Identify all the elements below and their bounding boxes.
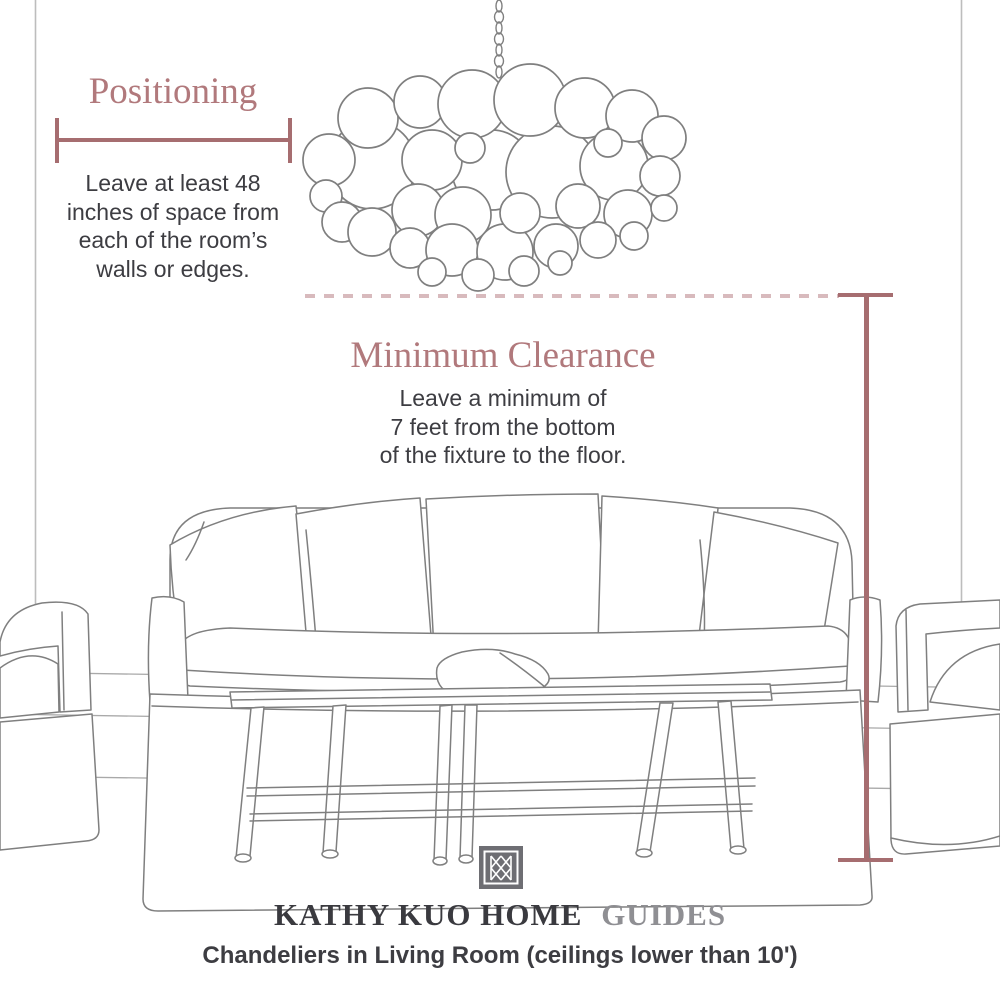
positioning-body-line: walls or edges. [43, 255, 303, 284]
brand-lockup: KATHY KUO HOME GUIDES [0, 897, 1000, 933]
kathy-kuo-home-logo-icon [479, 846, 523, 889]
clearance-measure-line [864, 294, 869, 862]
brand-guides-label: GUIDES [601, 897, 726, 932]
infographic-canvas: Positioning Leave at least 48 inches of … [0, 0, 1000, 1000]
clearance-body-line: 7 feet from the bottom [343, 413, 663, 442]
brand-name: KATHY KUO HOME [274, 897, 583, 932]
clearance-dashed-line [305, 294, 839, 298]
chandelier-illustration [303, 0, 686, 291]
chandelier-bubbles [303, 64, 686, 291]
bracket-right-cap [288, 118, 292, 163]
clearance-body-line: of the fixture to the floor. [343, 441, 663, 470]
positioning-title: Positioning [43, 72, 303, 112]
sofa-arm-left [148, 597, 188, 702]
positioning-body-line: inches of space from [43, 198, 303, 227]
armchair-right-illustration [890, 600, 1000, 854]
clearance-title: Minimum Clearance [343, 336, 663, 376]
chandelier-chain [495, 0, 504, 78]
clearance-body-line: Leave a minimum of [343, 384, 663, 413]
positioning-body: Leave at least 48 inches of space from e… [43, 169, 303, 283]
clearance-annotation: Minimum Clearance Leave a minimum of 7 f… [343, 336, 663, 470]
clearance-measure-bottom-cap [838, 858, 893, 862]
positioning-body-line: Leave at least 48 [43, 169, 303, 198]
positioning-body-line: each of the room’s [43, 226, 303, 255]
armchair-left-illustration [0, 602, 99, 850]
bracket-bar [55, 138, 292, 142]
positioning-measure-bracket [55, 118, 292, 163]
positioning-annotation: Positioning Leave at least 48 inches of … [43, 72, 303, 283]
clearance-body: Leave a minimum of 7 feet from the botto… [343, 384, 663, 470]
guide-subtitle: Chandeliers in Living Room (ceilings low… [0, 941, 1000, 971]
